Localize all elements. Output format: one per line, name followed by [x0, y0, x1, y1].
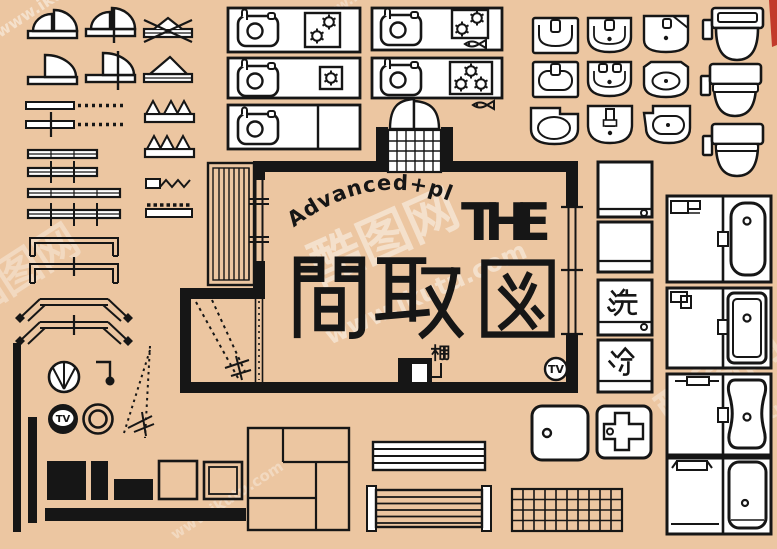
sideboard-bar [45, 508, 246, 521]
sliding-window-wide-with-marks [28, 203, 120, 226]
ceiling-fan-symbol [49, 362, 79, 392]
washbasin-square [533, 18, 578, 53]
shelf-symbol: 棚 [398, 344, 448, 388]
unit-bath-rounded-tub [667, 196, 771, 282]
washbasin-tall-tap [588, 106, 632, 143]
accordion-door [145, 101, 194, 122]
cabinet-symbol [598, 222, 652, 272]
slatted-bench [367, 486, 491, 531]
symbol-sheet: www.ikutu.com www.ikutu.com 酷图网 www.ikut… [0, 0, 777, 549]
tv-round-symbol: TV [48, 404, 78, 434]
counter-sink-1-burner [228, 58, 360, 98]
stairs-dashed [196, 300, 251, 380]
table-square [159, 461, 197, 499]
unit-bath-contoured-tub [667, 374, 771, 455]
double-swing-door-with-mark [86, 7, 135, 43]
sliding-window [28, 150, 97, 158]
slatted-mat [373, 442, 485, 470]
toilet-lid-open [701, 64, 761, 116]
single-swing-door [28, 55, 77, 84]
refrigerator-labeled: 冷 [598, 340, 652, 392]
wall-opening-dotted-with-mark [26, 112, 123, 137]
accordion-door-alt [145, 136, 194, 157]
washing-machine-labeled: 洗 [598, 280, 652, 335]
tiled-floor [512, 489, 622, 531]
washing-machine-symbol [598, 162, 652, 217]
shower-base [532, 406, 588, 460]
washbasin-oval-bowl [644, 62, 688, 97]
black-table-small [91, 461, 108, 500]
symbol-sheet-canvas: www.ikutu.com www.ikutu.com 酷图网 www.ikut… [0, 0, 777, 549]
louvered-vent-window [144, 18, 192, 42]
cross-unit [597, 406, 651, 458]
counter-sink-2-burner [228, 8, 360, 52]
unit-bath-wide-tub [667, 458, 771, 534]
counter-sink-cabinet [228, 105, 360, 149]
wall-post [13, 343, 21, 532]
washbasin-offset-left [531, 108, 578, 144]
folding-partition [146, 179, 190, 188]
double-circle-stool [84, 405, 113, 434]
awning-window [144, 57, 192, 82]
sliding-window-with-marks [28, 161, 97, 183]
stair-dash-marks [124, 346, 154, 438]
sliding-window-wide [28, 189, 120, 197]
angled-bay-window-with-mark [15, 315, 133, 346]
black-table-large [47, 461, 86, 500]
dashed-threshold [146, 205, 192, 217]
single-swing-door-with-mark [86, 51, 135, 90]
counter-sink-2-burner-fish-grill [372, 8, 502, 50]
toilet-with-tank [703, 8, 763, 60]
red-corner-mark [769, 0, 777, 47]
black-bench [114, 479, 153, 500]
balcony-deck [208, 163, 254, 285]
title-the: THE [461, 193, 551, 253]
double-door-entry-tiled-step [376, 99, 453, 172]
tv-round-label: TV [56, 414, 71, 425]
table-double-border [204, 462, 242, 499]
unit-bath-double-wall-tub [667, 288, 771, 368]
pendant-light-symbol [96, 362, 115, 386]
counter-sink-3-burner-fish-grill [372, 58, 502, 109]
toilet-seat-band [703, 124, 763, 176]
wall-post-short [28, 417, 37, 523]
watermark-cn-left: 酷图网 [0, 215, 89, 330]
tv-floor-label: TV [548, 363, 565, 376]
washbasin-two-taps [588, 62, 631, 96]
washbasin-round-bowl [588, 18, 631, 52]
wall-opening-dotted [26, 102, 123, 109]
tv-floor-symbol: TV [545, 358, 567, 380]
washbasin-offset-right [644, 106, 690, 143]
washbasin-corner-cut [644, 16, 688, 52]
washbasin-rounded-rect [533, 62, 578, 97]
